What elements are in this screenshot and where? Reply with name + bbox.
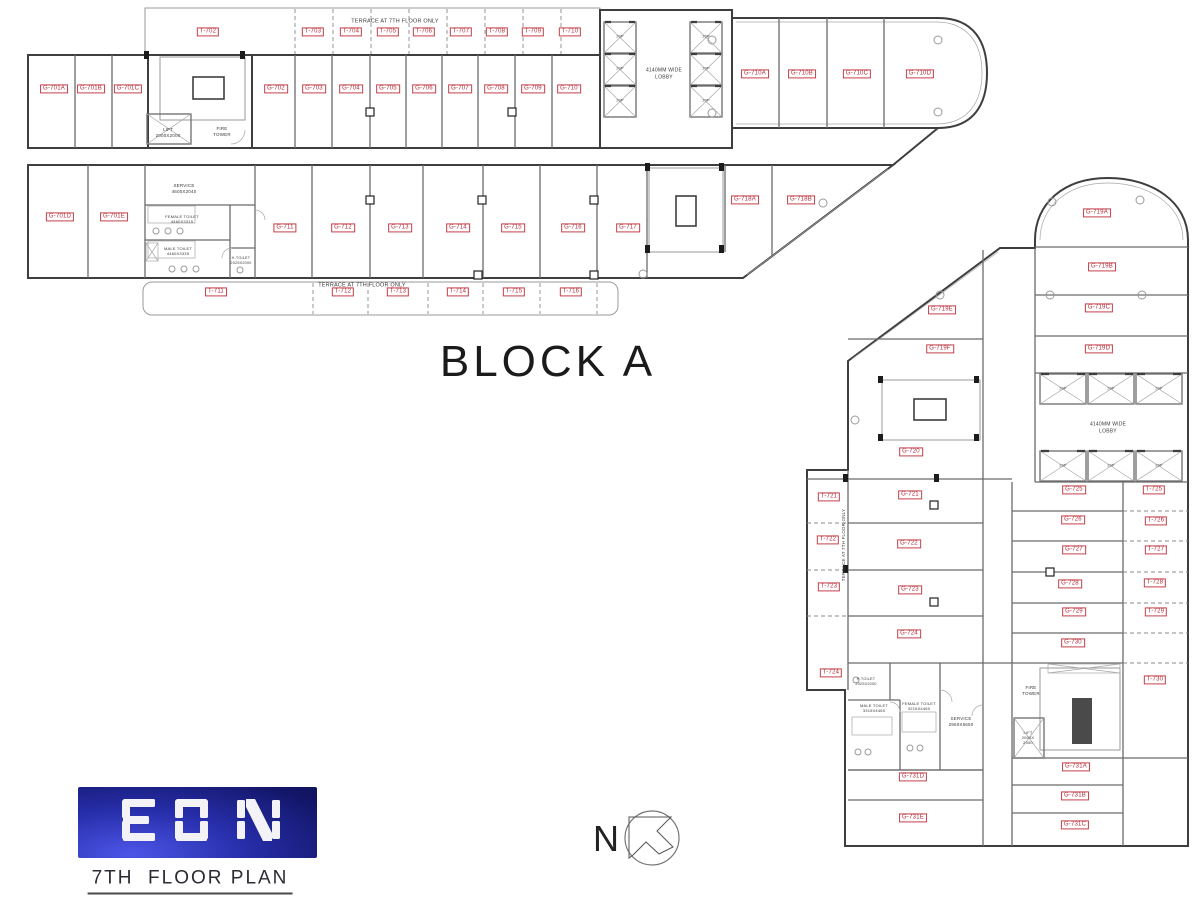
floor-plan-canvas: T-702T-703T-704T-705T-706T-707T-708T-709…	[0, 0, 1200, 900]
north-label: N	[593, 818, 619, 860]
right-building-linework	[807, 178, 1188, 846]
plan-linework	[0, 0, 1200, 900]
eon-logo	[78, 787, 317, 858]
left-building-linework	[28, 8, 987, 315]
block-title: BLOCK A	[440, 337, 656, 387]
floor-plan-title: 7TH FLOOR PLAN	[88, 868, 293, 895]
eon-logo-letters	[78, 787, 317, 858]
north-arrow	[625, 811, 679, 865]
